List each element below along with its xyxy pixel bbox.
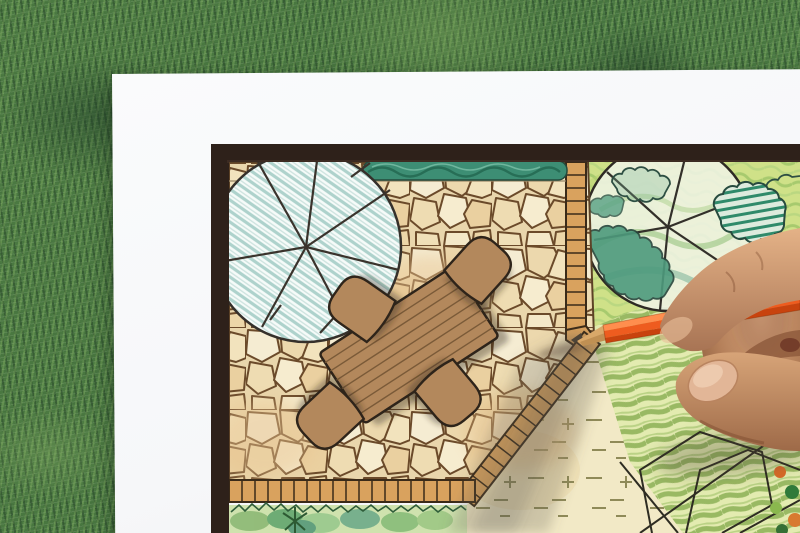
deep-crease: [780, 338, 800, 352]
planting-bed: [229, 503, 467, 533]
photo-scene: [0, 0, 800, 533]
garden-plan-drawing: [205, 140, 800, 533]
